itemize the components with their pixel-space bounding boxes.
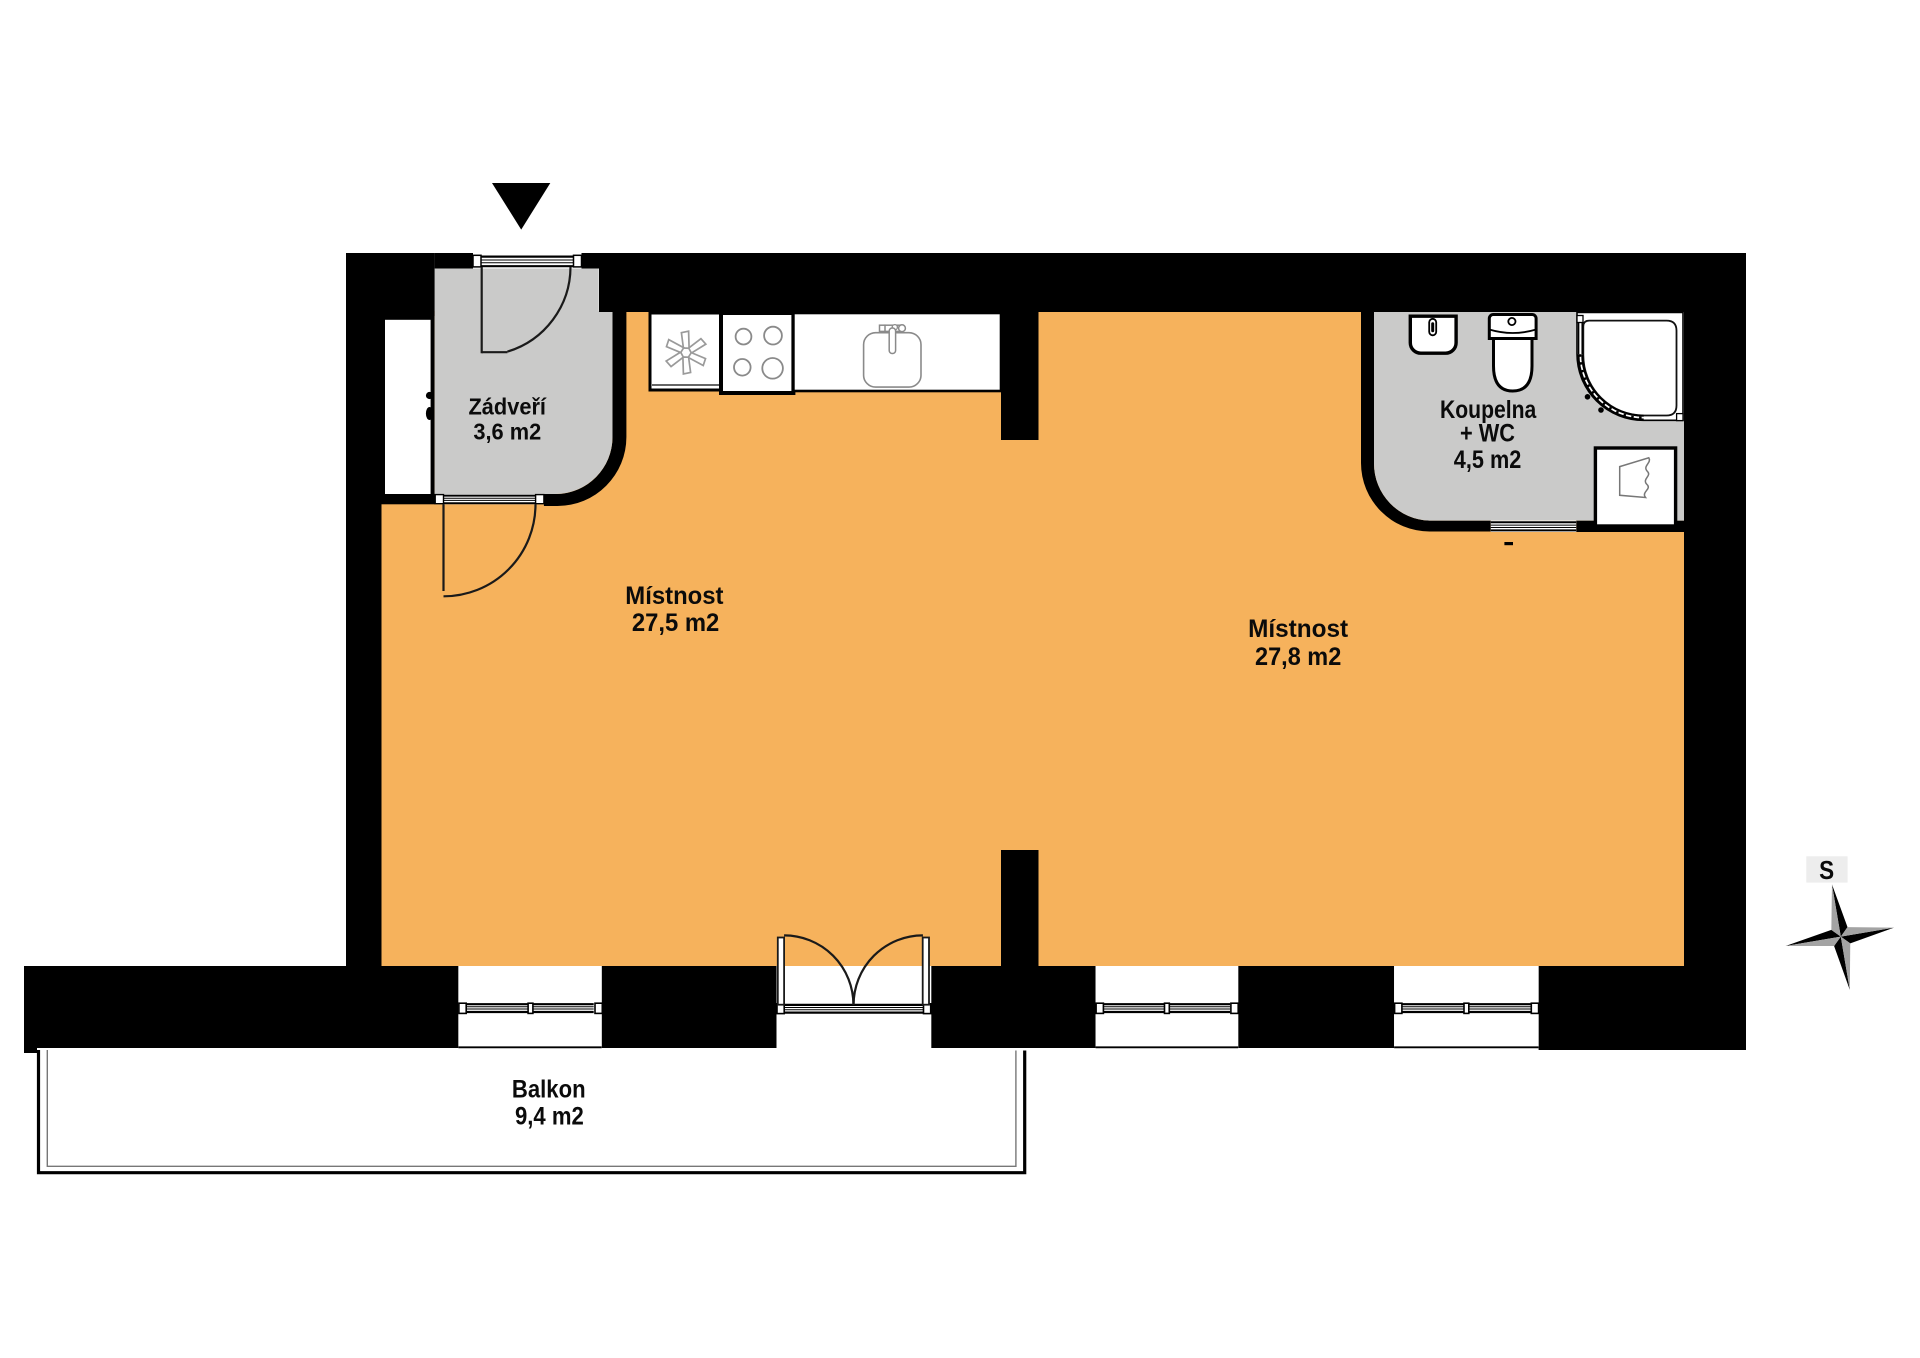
svg-text:27,5 m2: 27,5 m2 bbox=[632, 609, 719, 637]
svg-text:9,4 m2: 9,4 m2 bbox=[515, 1102, 584, 1130]
svg-text:+ WC: + WC bbox=[1460, 419, 1515, 447]
svg-text:27,8 m2: 27,8 m2 bbox=[1255, 643, 1341, 671]
svg-text:3,6 m2: 3,6 m2 bbox=[473, 418, 541, 444]
svg-text:Místnost: Místnost bbox=[625, 582, 724, 610]
svg-text:S: S bbox=[1819, 855, 1834, 885]
svg-text:Balkon: Balkon bbox=[512, 1076, 586, 1104]
svg-text:4,5 m2: 4,5 m2 bbox=[1454, 446, 1522, 474]
svg-text:Zádveří: Zádveří bbox=[469, 394, 548, 420]
svg-text:Místnost: Místnost bbox=[1248, 615, 1349, 643]
